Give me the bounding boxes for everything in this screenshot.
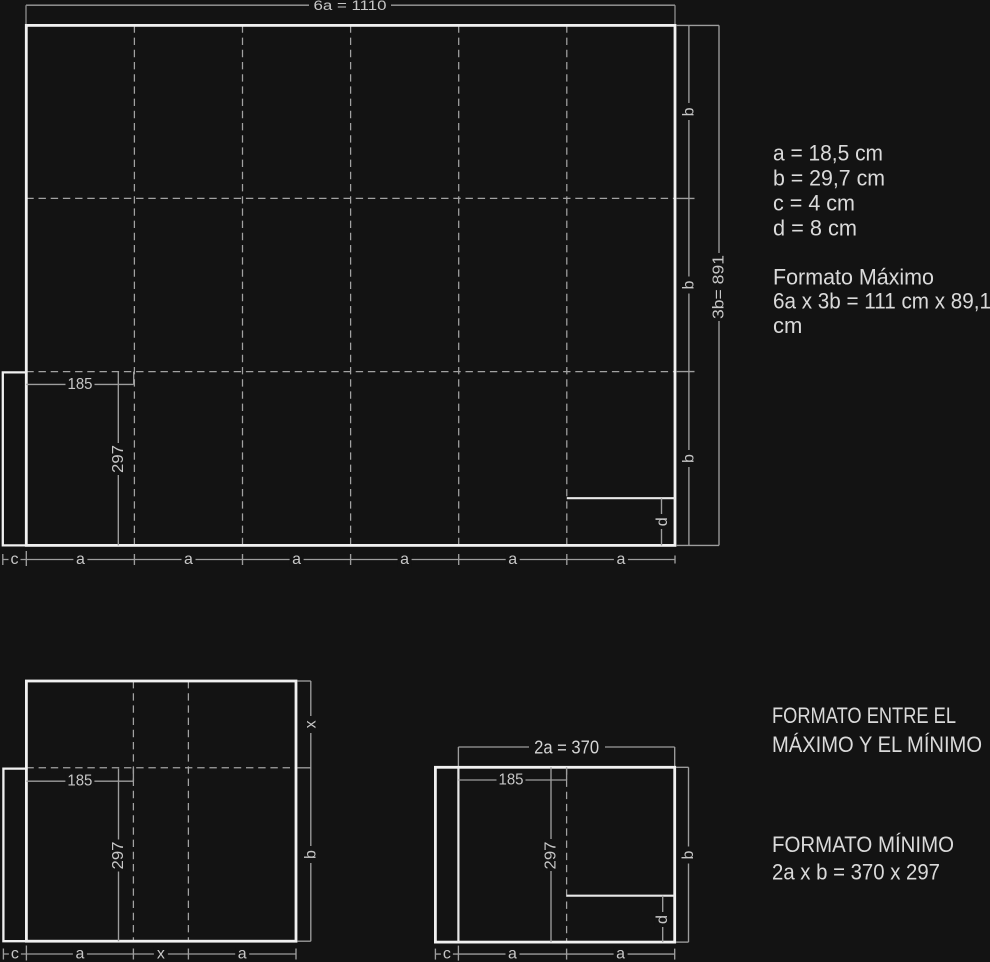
svg-text:a: a	[400, 551, 409, 568]
svg-text:x: x	[157, 946, 165, 962]
svg-text:2a x b = 370 x 297: 2a x b = 370 x 297	[772, 860, 940, 885]
svg-text:a: a	[292, 551, 301, 568]
svg-text:FORMATO ENTRE EL: FORMATO ENTRE EL	[772, 703, 956, 728]
svg-text:b: b	[680, 280, 697, 289]
svg-text:x: x	[302, 720, 319, 728]
svg-text:c: c	[11, 946, 19, 962]
svg-text:a: a	[75, 946, 84, 962]
svg-text:FORMATO MÍNIMO: FORMATO MÍNIMO	[772, 832, 954, 857]
svg-text:297: 297	[110, 445, 127, 473]
svg-text:a: a	[184, 551, 193, 568]
svg-text:3b= 891: 3b= 891	[711, 255, 728, 319]
svg-text:d: d	[654, 915, 671, 924]
svg-text:b: b	[302, 850, 319, 859]
svg-text:d = 8 cm: d = 8 cm	[773, 215, 857, 240]
svg-text:Formato Máximo: Formato Máximo	[773, 264, 934, 289]
svg-text:c = 4 cm: c = 4 cm	[773, 190, 855, 215]
svg-text:b: b	[680, 454, 697, 463]
svg-text:a = 18,5 cm: a = 18,5 cm	[773, 141, 883, 166]
svg-text:297: 297	[110, 842, 127, 870]
svg-text:cm: cm	[773, 313, 802, 338]
svg-text:b: b	[680, 850, 697, 859]
svg-text:297: 297	[543, 842, 560, 870]
svg-text:b = 29,7 cm: b = 29,7 cm	[773, 166, 885, 191]
svg-text:6a x 3b = 111 cm x 89,1: 6a x 3b = 111 cm x 89,1	[773, 289, 990, 314]
svg-text:185: 185	[499, 772, 524, 789]
svg-text:c: c	[443, 946, 451, 962]
svg-text:a: a	[238, 946, 247, 962]
svg-text:a: a	[616, 946, 625, 962]
svg-text:2a = 370: 2a = 370	[534, 737, 599, 758]
svg-text:a: a	[76, 551, 85, 568]
svg-text:185: 185	[67, 773, 92, 790]
svg-text:185: 185	[68, 376, 93, 393]
svg-text:a: a	[508, 946, 517, 962]
svg-text:a: a	[616, 551, 625, 568]
svg-text:a: a	[508, 551, 517, 568]
svg-text:c: c	[11, 551, 19, 568]
svg-text:b: b	[680, 107, 697, 116]
svg-text:6a = 1110: 6a = 1110	[314, 0, 387, 13]
svg-text:MÁXIMO Y EL MÍNIMO: MÁXIMO Y EL MÍNIMO	[772, 732, 982, 757]
svg-text:d: d	[654, 517, 671, 526]
